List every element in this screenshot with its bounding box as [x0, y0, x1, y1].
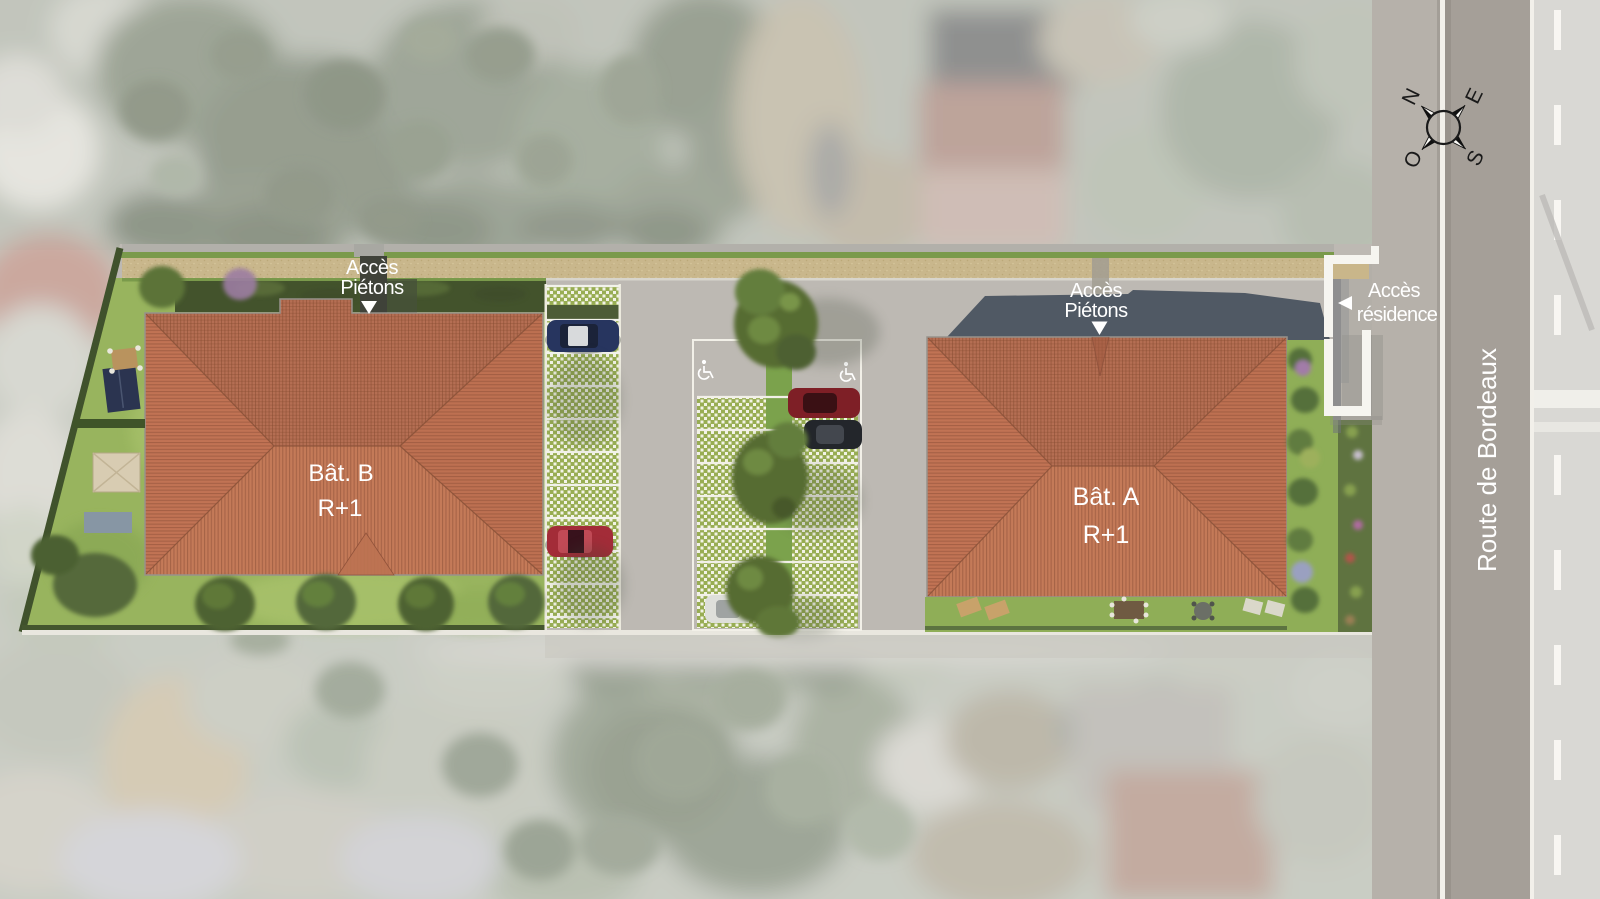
- svg-text:résidence: résidence: [1357, 304, 1438, 326]
- svg-text:Accès: Accès: [1070, 280, 1122, 302]
- svg-text:Bât. B: Bât. B: [308, 460, 373, 487]
- svg-text:Route de Bordeaux: Route de Bordeaux: [1472, 348, 1502, 572]
- svg-text:Piétons: Piétons: [340, 277, 404, 299]
- svg-text:Piétons: Piétons: [1064, 300, 1128, 322]
- svg-text:Accès: Accès: [1368, 280, 1420, 302]
- svg-text:R+1: R+1: [1083, 521, 1130, 549]
- svg-text:Accès: Accès: [346, 257, 398, 279]
- svg-text:R+1: R+1: [318, 495, 363, 522]
- svg-text:Bât. A: Bât. A: [1073, 483, 1140, 511]
